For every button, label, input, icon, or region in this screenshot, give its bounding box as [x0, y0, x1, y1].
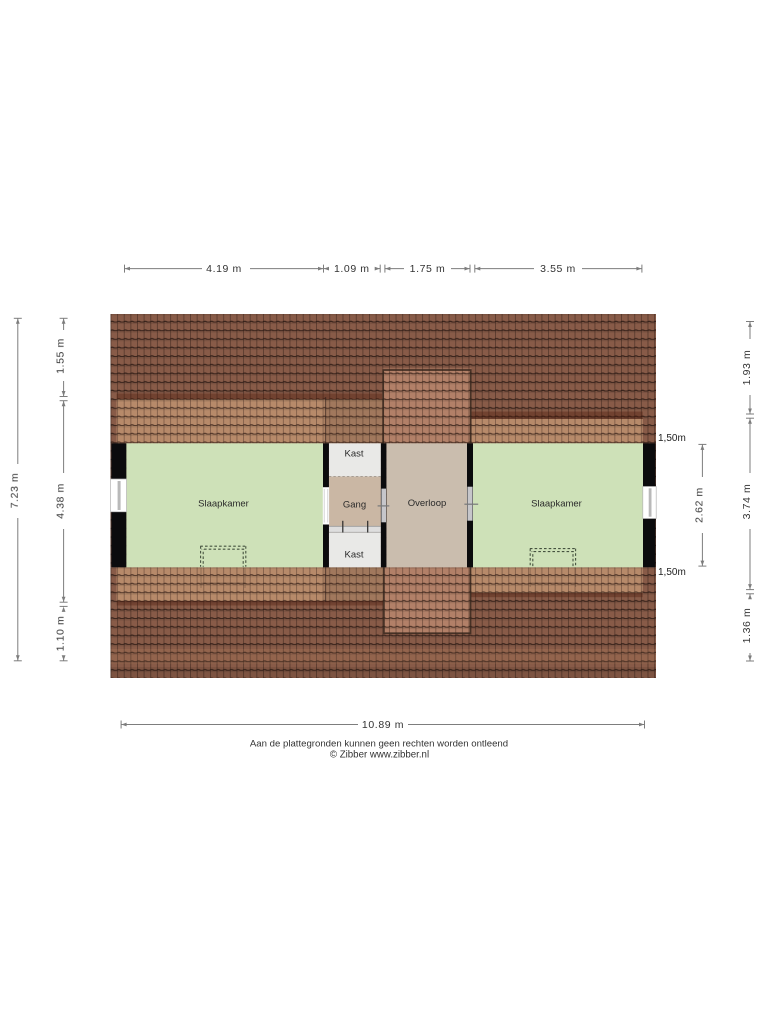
svg-text:1,50m: 1,50m	[658, 433, 686, 444]
svg-text:Aan de plattegronden kunnen ge: Aan de plattegronden kunnen geen rechten…	[250, 739, 508, 750]
svg-text:© Zibber www.zibber.nl: © Zibber www.zibber.nl	[330, 750, 429, 761]
svg-text:Slaapkamer: Slaapkamer	[198, 499, 249, 510]
svg-text:10.89 m: 10.89 m	[362, 719, 404, 731]
svg-text:1.93 m: 1.93 m	[741, 350, 753, 386]
svg-text:1,50m: 1,50m	[658, 567, 686, 578]
svg-text:1.09 m: 1.09 m	[334, 263, 370, 275]
svg-text:1.55 m: 1.55 m	[55, 338, 67, 374]
svg-text:7.23 m: 7.23 m	[9, 473, 21, 509]
svg-text:4.38 m: 4.38 m	[55, 483, 67, 519]
svg-text:1.10 m: 1.10 m	[55, 616, 67, 652]
svg-text:3.74 m: 3.74 m	[741, 484, 753, 520]
svg-text:2.62 m: 2.62 m	[693, 487, 705, 523]
svg-text:1.75 m: 1.75 m	[410, 263, 446, 275]
svg-text:Slaapkamer: Slaapkamer	[531, 499, 582, 510]
svg-text:3.55 m: 3.55 m	[540, 263, 576, 275]
svg-text:Gang: Gang	[343, 500, 366, 511]
svg-text:Overloop: Overloop	[408, 498, 447, 509]
svg-text:Kast: Kast	[344, 550, 363, 561]
svg-text:4.19 m: 4.19 m	[206, 263, 242, 275]
svg-text:1.36 m: 1.36 m	[741, 608, 753, 644]
svg-text:Kast: Kast	[344, 449, 363, 460]
